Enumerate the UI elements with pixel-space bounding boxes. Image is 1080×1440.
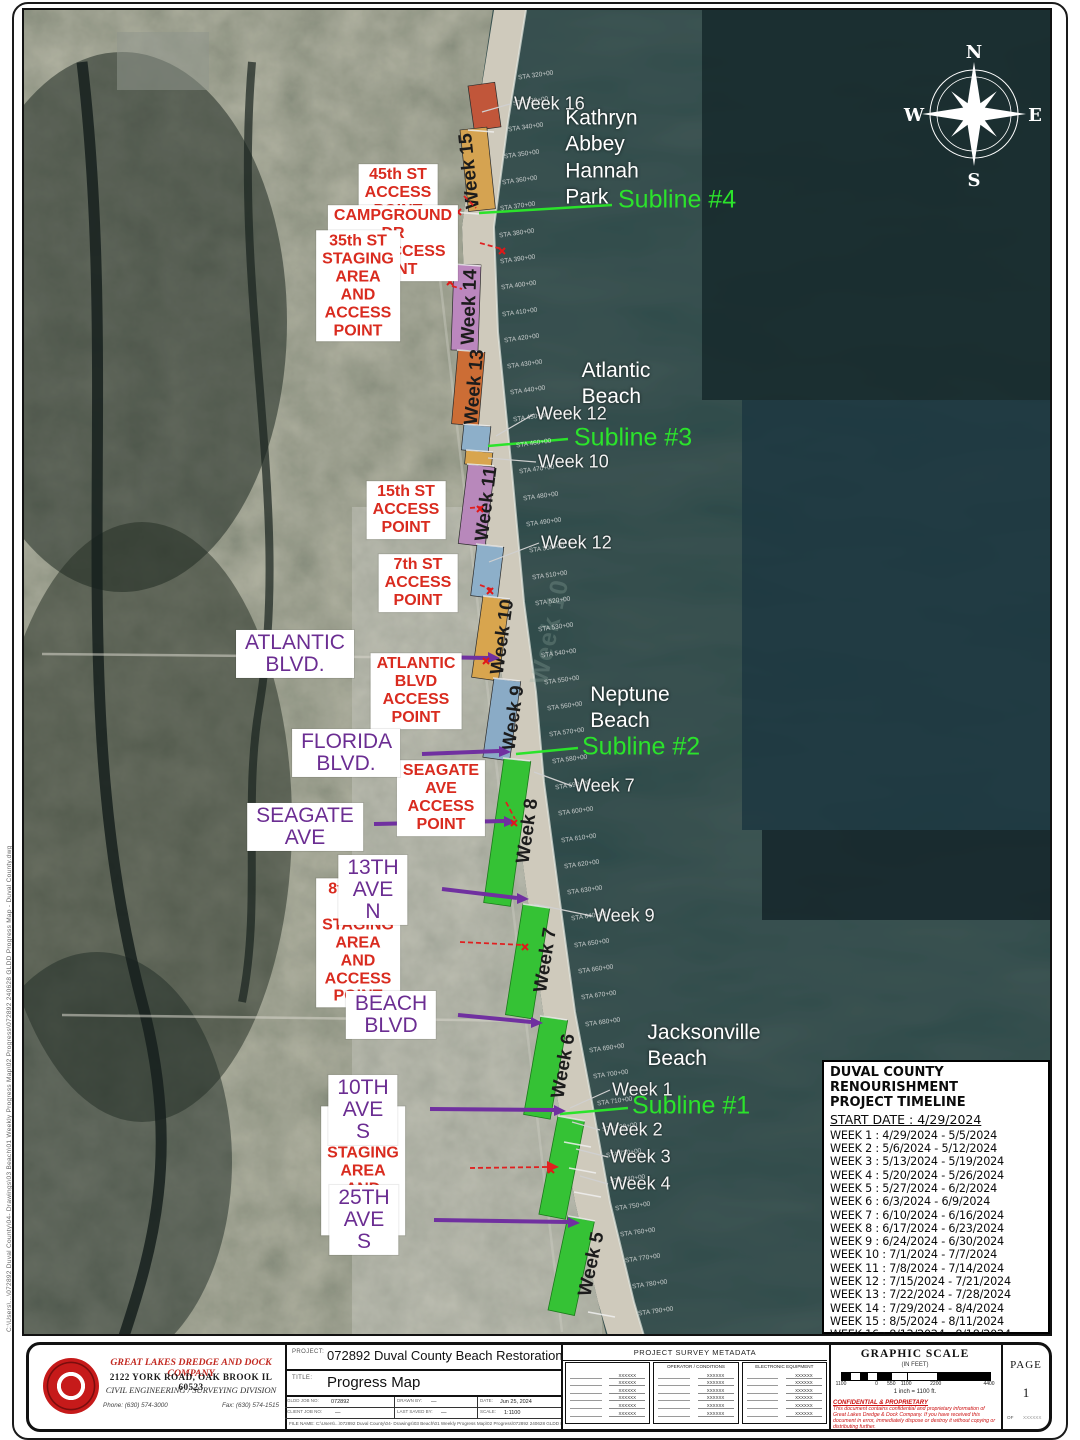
confidential-note: CONFIDENTIAL & PROPRIETARY This document… [833,1400,997,1431]
station-label: STA 780+00 [632,1279,668,1291]
timeline-week-row: WEEK 15 : 8/5/2024 - 8/11/2024 [830,1315,1042,1328]
station-label: STA 660+00 [578,964,614,976]
timeline-week-row: WEEK 10 : 7/1/2024 - 7/7/2024 [830,1248,1042,1261]
access-point-label: ATLANTIC BLVD ACCESS POINT [371,653,462,729]
station-label: STA 770+00 [625,1253,661,1265]
station-label: STA 350+00 [504,149,540,161]
timeline-week-row: WEEK 14 : 7/29/2024 - 8/4/2024 [830,1302,1042,1315]
station-label: STA 430+00 [507,359,543,371]
metadata-box-title [568,1364,647,1371]
company-contact: Phone: (630) 574-3000 Fax: (630) 574-151… [103,1402,279,1409]
graphic-scale-note: 1 inch = 1100 ft. [829,1389,1001,1395]
page-of-value: XXXXXX [1023,1415,1041,1420]
field-value: 072892 [331,1399,349,1405]
timeline-week-row: WEEK 2 : 5/6/2024 - 5/12/2024 [830,1142,1042,1155]
map-overlay: Week 10 STA 320+00STA 330+00STA 340+00ST… [22,8,1052,1336]
graphic-scale-title: GRAPHIC SCALE [829,1348,1001,1360]
station-label: STA 360+00 [502,175,538,187]
project-row: PROJECT: 072892 Duval County Beach Resto… [285,1345,561,1371]
field-cell: DATE:Jun 25, 2024 [478,1397,561,1408]
title-label: TITLE: [292,1375,312,1381]
timeline-week-row: WEEK 16 : 8/12/2024 - 8/18/2024 [830,1328,1042,1336]
station-label: STA 410+00 [502,307,538,319]
week-callout: Week 12 [536,404,607,425]
progress-map: Week 15 Week 14 Week 13 Week 11 Week 10 … [22,8,1052,1336]
week-10-watermark: Week 10 [525,577,576,687]
station-label: STA 560+00 [547,701,583,713]
week-callout: Week 12 [541,533,612,554]
week-callout: Week 7 [574,776,635,797]
metadata-box-operator: OPERATOR / CONDITIONS XXXXXX XXXXXX XXXX… [653,1362,738,1424]
station-label: STA 760+00 [620,1227,656,1239]
station-label: STA 610+00 [561,833,597,845]
city-label: Jacksonville Beach [647,1020,760,1073]
access-point-label: 35th ST STAGING AREA AND ACCESS POINT [316,230,400,341]
field-label: SCALE: [480,1409,496,1414]
station-label: STA 570+00 [549,727,585,739]
metadata-box-survey: XXXXXX XXXXXX XXXXXX XXXXXX XXXXXX XXXXX… [565,1362,650,1424]
week-callout: Week 10 [538,452,609,473]
field-value: — [335,1410,341,1416]
field-value: — [431,1399,437,1405]
timeline-week-row: WEEK 11 : 7/8/2024 - 7/14/2024 [830,1262,1042,1275]
timeline-week-row: WEEK 6 : 6/3/2024 - 6/9/2024 [830,1195,1042,1208]
subline-label: Subline #2 [582,733,700,762]
field-label: LAST SAVED BY: [397,1409,433,1414]
timeline-week-row: WEEK 13 : 7/22/2024 - 7/28/2024 [830,1288,1042,1301]
week-callout: Week 4 [610,1174,671,1195]
field-value: 1:1100 [504,1410,520,1416]
week-callout: Week 1 [612,1080,673,1101]
street-label: SEAGATE AVE [247,803,363,851]
station-label: STA 390+00 [500,254,536,266]
subline-label: Subline #4 [618,186,736,215]
timeline-week-row: WEEK 1 : 4/29/2024 - 5/5/2024 [830,1129,1042,1142]
timeline-title: DUVAL COUNTY RENOURISHMENT PROJECT TIMEL… [830,1066,1042,1111]
street-label: 13TH AVE N [338,855,407,925]
timeline-week-row: WEEK 7 : 6/10/2024 - 6/16/2024 [830,1209,1042,1222]
title-block: GREAT LAKES DREDGE AND DOCK COMPANY 2122… [26,1342,1052,1432]
station-label: STA 680+00 [585,1017,621,1029]
timeline-week-row: WEEK 8 : 6/17/2024 - 6/23/2024 [830,1222,1042,1235]
street-label: BEACH BLVD [346,991,436,1039]
metadata-box-title: OPERATOR / CONDITIONS [656,1364,735,1371]
station-label: STA 380+00 [499,228,535,240]
city-label: Neptune Beach [590,682,669,735]
street-label: FLORIDA BLVD. [292,729,400,777]
station-label: STA 750+00 [615,1201,651,1213]
page-of-label: OF [1007,1415,1013,1420]
field-cell: DRAWN BY:— [395,1397,478,1408]
title-value: Progress Map [327,1374,420,1391]
station-label: STA 420+00 [504,333,540,345]
graphic-scale-ticks: 1100 0 550 1100 2200 4400 [841,1381,989,1389]
metadata-box-equipment: ELECTRONIC EQUIPMENT XXXXXX XXXXXX XXXXX… [742,1362,827,1424]
subline-label: Subline #3 [574,424,692,453]
street-label: ATLANTIC BLVD. [236,630,354,678]
company-fax: Fax: (630) 574-1515 [222,1402,279,1409]
project-label: PROJECT: [292,1349,324,1355]
field-cell: GLDD JOB NO:072892 [285,1397,395,1408]
station-label: STA 440+00 [510,385,546,397]
field-value: Jun 25, 2024 [500,1399,532,1405]
field-label: GLDD JOB NO: [287,1398,319,1403]
street-label: 25TH AVE S [329,1185,398,1255]
week-callout: Week 16 [514,94,585,115]
project-value: 072892 Duval County Beach Restoration [327,1348,563,1363]
field-cell: LAST SAVED BY:— [395,1408,478,1419]
station-label: STA 650+00 [574,938,610,950]
timeline-start-date: START DATE : 4/29/2024 [830,1112,1042,1127]
company-logo [43,1358,99,1414]
station-label: STA 480+00 [523,491,559,503]
week-callout: Week 2 [602,1120,663,1141]
field-label: DRAWN BY: [397,1398,422,1403]
timeline-week-row: WEEK 9 : 6/24/2024 - 6/30/2024 [830,1235,1042,1248]
station-label: STA 460+00 [516,438,552,450]
station-label: STA 630+00 [567,885,603,897]
station-label: STA 600+00 [558,806,594,818]
file-path-sidebar: C:\Users\...\072892 Duval County\04- Dra… [6,32,13,1332]
access-point-label: SEAGATE AVE ACCESS POINT [397,760,485,836]
station-label: STA 490+00 [526,517,562,529]
field-label: DATE: [480,1398,493,1403]
station-label: STA 400+00 [501,280,537,292]
week-callout: Week 9 [594,906,655,927]
metadata-title: PROJECT SURVEY METADATA [563,1345,827,1361]
page-number: 1 [1001,1385,1051,1401]
file-name-row: FILE NAME: C:\Users\...\072892 Duval Cou… [285,1419,561,1428]
station-label: STA 690+00 [589,1043,625,1055]
station-label: STA 790+00 [638,1306,674,1318]
company-division: CIVIL ENGINEERING / SURVEYING DIVISION [103,1385,279,1395]
timeline-week-row: WEEK 3 : 5/13/2024 - 5/19/2024 [830,1155,1042,1168]
week-callout: Week 3 [610,1147,671,1168]
station-label: STA 370+00 [500,201,536,213]
file-name-label: FILE NAME: [289,1421,315,1426]
station-label: STA 340+00 [508,122,544,134]
access-point-label: 15th ST ACCESS POINT [367,481,446,539]
graphic-scale-bar [841,1372,991,1381]
field-label: CLIENT JOB NO: [287,1409,322,1414]
metadata-boxes: XXXXXX XXXXXX XXXXXX XXXXXX XXXXXX XXXXX… [565,1362,827,1424]
timeline-week-row: WEEK 5 : 5/27/2024 - 6/2/2024 [830,1182,1042,1195]
station-label: STA 320+00 [518,70,554,82]
timeline-panel: DUVAL COUNTY RENOURISHMENT PROJECT TIMEL… [822,1060,1050,1334]
field-cell: SCALE:1:1100 [478,1408,561,1419]
street-label: 10TH AVE S [328,1075,397,1145]
timeline-week-rows: WEEK 1 : 4/29/2024 - 5/5/2024WEEK 2 : 5/… [830,1129,1042,1336]
timeline-week-row: WEEK 12 : 7/15/2024 - 7/21/2024 [830,1275,1042,1288]
access-point-label: 7th ST ACCESS POINT [379,554,458,612]
confidential-body: This document contains confidential and … [833,1406,997,1431]
timeline-week-row: WEEK 4 : 5/20/2024 - 5/26/2024 [830,1169,1042,1182]
file-name-value: C:\Users\...\072892 Duval County\04- Dra… [316,1421,561,1426]
metadata-box-title: ELECTRONIC EQUIPMENT [745,1364,824,1371]
field-cell: CLIENT JOB NO:— [285,1408,395,1419]
title-row: TITLE: Progress Map [285,1371,561,1397]
drawing-sheet: C:\Users\...\072892 Duval County\04- Dra… [0,0,1080,1440]
station-label: STA 670+00 [581,990,617,1002]
field-value: — [441,1410,447,1416]
station-label: STA 620+00 [564,859,600,871]
company-phone: Phone: (630) 574-3000 [103,1402,168,1409]
page-label: PAGE [1001,1359,1051,1371]
graphic-scale-units: (IN FEET) [829,1362,1001,1368]
city-label: Atlantic Beach [582,358,651,411]
